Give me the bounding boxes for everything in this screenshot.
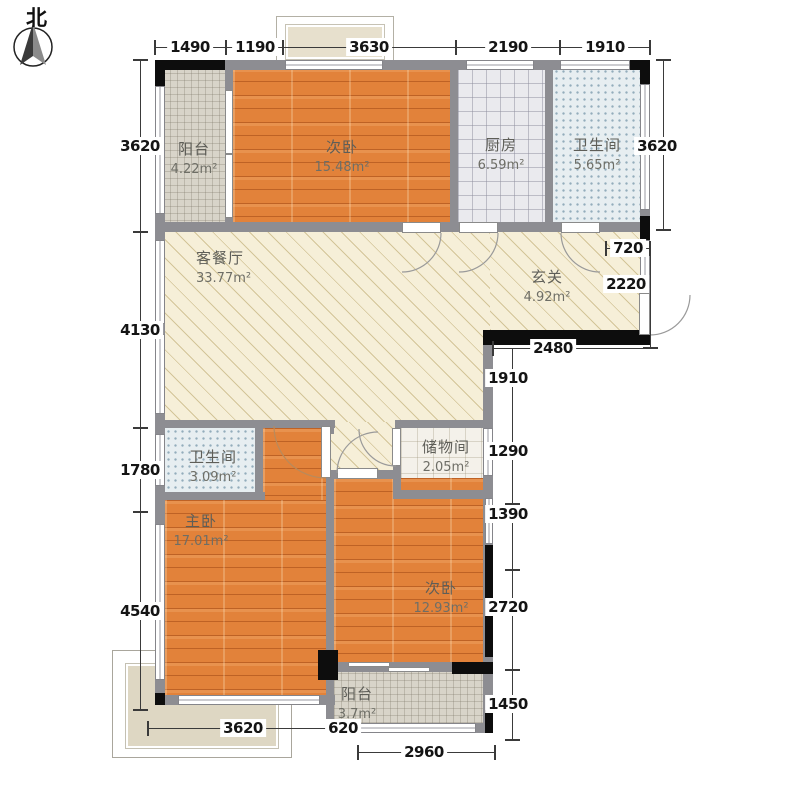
- dim-right-3620: 3620: [634, 137, 680, 155]
- tick: [154, 40, 156, 55]
- dim-inner-1290: 1290: [485, 442, 531, 460]
- room-label-bedroom-top: 次卧 15.48m²: [314, 136, 369, 175]
- dim-top-1910: 1910: [582, 38, 628, 56]
- dim-inner-1450: 1450: [485, 695, 531, 713]
- door-arc-entrance: [650, 295, 690, 335]
- tick: [133, 511, 148, 513]
- room-label-bathroom-mid: 卫生间 3.09m²: [189, 446, 237, 485]
- tick: [494, 745, 496, 760]
- tick: [505, 739, 520, 741]
- tick: [656, 59, 671, 61]
- room-label-kitchen: 厨房 6.59m²: [478, 134, 525, 173]
- dim-left-1780: 1780: [117, 461, 163, 479]
- tick: [133, 231, 148, 233]
- north-label: 北: [26, 2, 47, 32]
- tick: [559, 40, 561, 55]
- tick: [492, 341, 494, 356]
- tick: [133, 709, 148, 711]
- room-label-storage: 储物间 2.05m²: [422, 436, 470, 475]
- room-label-balcony-top: 阳台 4.22m²: [171, 138, 218, 177]
- dim-inner-1390: 1390: [485, 505, 531, 523]
- dim-right-2220: 2220: [603, 275, 649, 293]
- tick: [455, 40, 457, 55]
- dim-inner-1910: 1910: [485, 369, 531, 387]
- dim-top-3630: 3630: [346, 38, 392, 56]
- room-label-living-dining: 客餐厅 33.77m²: [196, 247, 251, 286]
- dim-top-2190: 2190: [485, 38, 531, 56]
- door-arc-bedroom-top: [402, 233, 441, 272]
- room-label-foyer: 玄关 4.92m²: [524, 266, 571, 305]
- room-label-master-bedroom: 主卧 17.01m²: [173, 510, 228, 549]
- dim-line-right-inner: [512, 348, 513, 740]
- dim-top-1490: 1490: [167, 38, 213, 56]
- tick: [225, 40, 227, 55]
- room-label-balcony-bottom: 阳台 3.7m²: [338, 683, 377, 722]
- tick: [357, 745, 359, 760]
- dim-right-720: 720: [610, 239, 646, 257]
- tick: [656, 229, 671, 231]
- door-arc-kitchen: [459, 233, 498, 272]
- tick: [147, 721, 149, 736]
- dim-line-2220: [650, 248, 651, 348]
- door-arcs-overlay: [0, 0, 800, 800]
- tick: [505, 669, 520, 671]
- dim-top-1190: 1190: [232, 38, 278, 56]
- room-label-bedroom-bottom: 次卧 12.93m²: [413, 577, 468, 616]
- room-label-bathroom-top: 卫生间 5.65m²: [573, 134, 621, 173]
- door-arc-master: [274, 426, 326, 478]
- dim-bottom-2960: 2960: [401, 743, 447, 761]
- dim-inner-2720: 2720: [485, 598, 531, 616]
- door-arc-bedroom-bottom: [337, 432, 378, 473]
- floor-plan: 北: [0, 0, 800, 800]
- tick: [605, 241, 607, 256]
- dim-line-top: [155, 47, 650, 48]
- tick: [282, 40, 284, 55]
- tick: [133, 427, 148, 429]
- tick: [505, 569, 520, 571]
- dim-bottom-3620: 3620: [220, 719, 266, 737]
- dim-entry-2480: 2480: [530, 339, 576, 357]
- tick: [649, 40, 651, 55]
- dim-left-4540: 4540: [117, 602, 163, 620]
- dim-bottom-620: 620: [325, 719, 361, 737]
- tick: [133, 59, 148, 61]
- dim-left-3620: 3620: [117, 137, 163, 155]
- dim-left-4130: 4130: [117, 321, 163, 339]
